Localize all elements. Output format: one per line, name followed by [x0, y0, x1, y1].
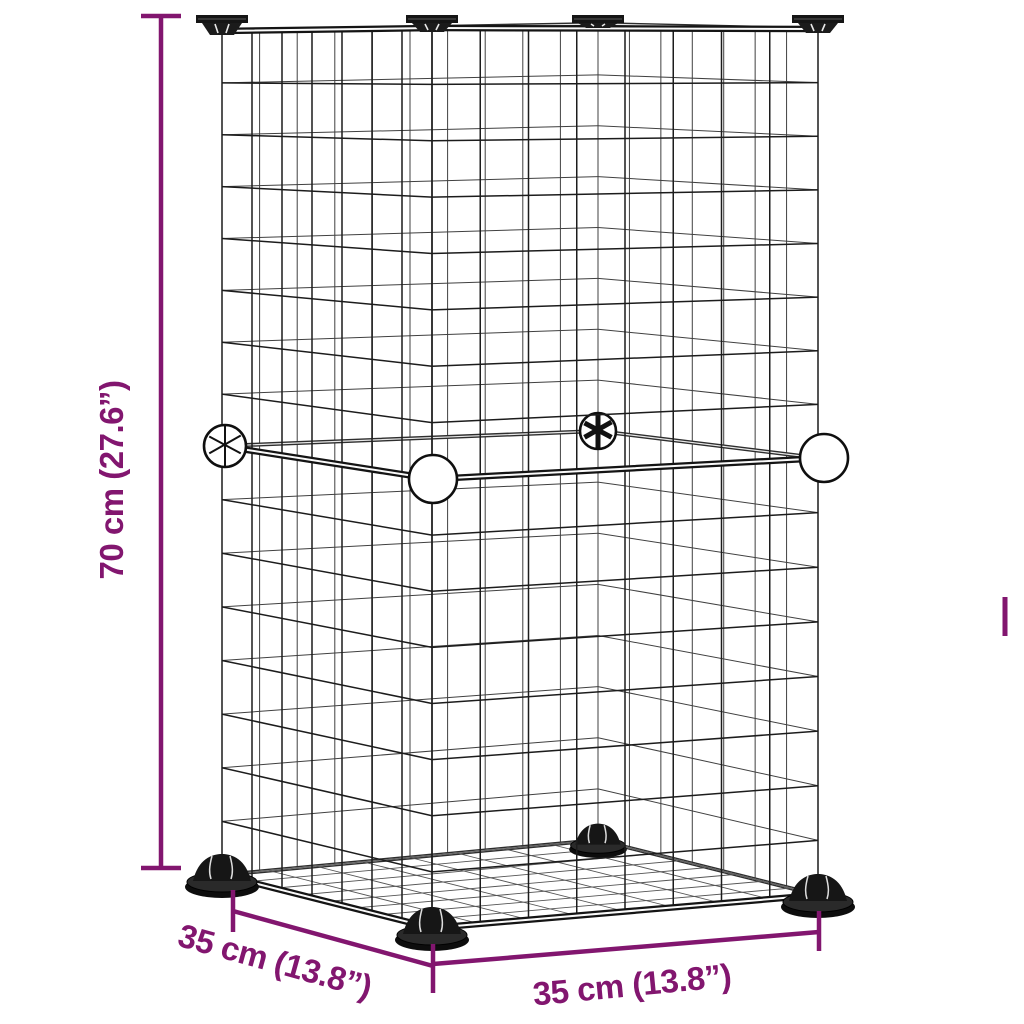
wire: [598, 278, 818, 297]
wire: [222, 342, 432, 366]
wire: [598, 482, 818, 513]
wire: [222, 83, 432, 85]
ball-connector: [800, 434, 848, 482]
wire: [222, 714, 432, 760]
wire: [222, 239, 432, 254]
wire: [598, 533, 818, 567]
wire: [598, 177, 818, 190]
cage-diagram-svg: 70 cm (27.6”) 35 cm (13.8”) 35 cm (13.8”…: [0, 0, 1024, 1024]
width-dimension-label: 35 cm (13.8”): [531, 957, 733, 1013]
foot-dome: [789, 874, 847, 901]
wire: [598, 380, 818, 404]
wire: [222, 500, 432, 536]
wire: [598, 584, 818, 622]
foot-dome: [575, 824, 620, 845]
width-dimension: [433, 911, 819, 964]
wire: [222, 187, 432, 198]
wire: [222, 290, 432, 310]
wire: [598, 687, 818, 732]
wire: [598, 228, 818, 244]
wire: [432, 83, 818, 85]
wire: [598, 636, 818, 677]
wire: [222, 394, 432, 423]
wire: [598, 329, 818, 351]
wire: [222, 135, 432, 141]
product-dimension-diagram: 70 cm (27.6”) 35 cm (13.8”) 35 cm (13.8”…: [0, 0, 1024, 1024]
wire: [222, 768, 432, 816]
height-dimension-label: 70 cm (27.6”): [93, 381, 130, 580]
wire: [598, 75, 818, 83]
depth-dimension-label: 35 cm (13.8”): [174, 917, 376, 1006]
cage-connectors: [185, 15, 855, 951]
wire: [353, 874, 735, 908]
wire: [222, 661, 432, 704]
wire: [327, 868, 708, 902]
wire: [598, 789, 818, 841]
width-dimension-line: [433, 932, 819, 964]
ball-connector: [409, 455, 457, 503]
wire: [598, 126, 818, 137]
height-dimension: [141, 16, 181, 868]
foot-dome: [403, 907, 461, 934]
cage-front-mesh: [222, 28, 818, 928]
wire: [301, 861, 681, 895]
wire: [222, 553, 432, 591]
wire: [248, 847, 625, 882]
foot-dome: [193, 854, 251, 881]
wire: [222, 607, 432, 648]
